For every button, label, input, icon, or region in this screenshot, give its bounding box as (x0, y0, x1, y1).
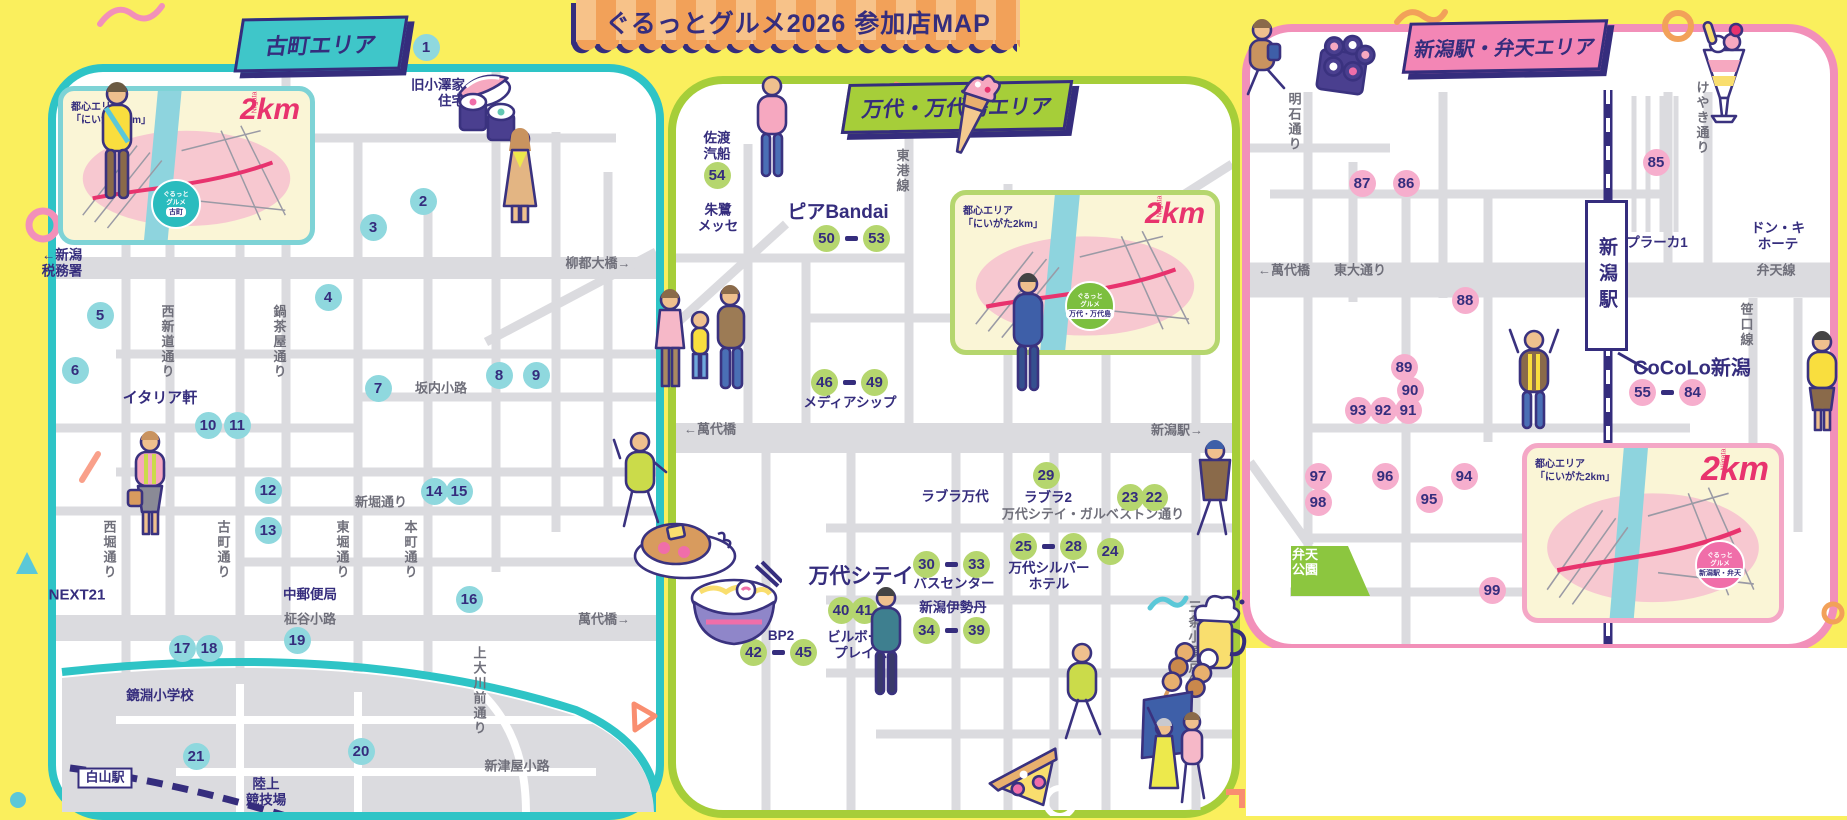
map-marker: 7 (365, 375, 392, 402)
map-marker-range: 3439 (913, 617, 990, 644)
person-tan-dress-woman (498, 128, 542, 224)
map-marker: 98 (1305, 489, 1332, 516)
map-marker: 97 (1305, 463, 1332, 490)
map-marker: 22 (1141, 484, 1168, 511)
person-yellow-man (92, 80, 142, 220)
person-cheering-brown (1506, 322, 1562, 434)
map-marker: 23 (1117, 484, 1144, 511)
map-marker: 10 (195, 412, 222, 439)
area-badge-station-label: 新潟駅・弁天エリア (1412, 30, 1597, 62)
map-marker: 1 (413, 34, 440, 61)
map-marker-range: 5053 (813, 225, 890, 252)
map-marker: 88 (1452, 287, 1479, 314)
noren-flag-group (1126, 688, 1218, 818)
map-marker: 2 (410, 188, 437, 215)
title-banner: ぐるっとグルメ2026 参加店MAP (576, 0, 1020, 44)
map-marker: 6 (62, 357, 89, 384)
map-marker: 3 (360, 214, 387, 241)
map-marker: 12 (255, 477, 282, 504)
map-marker-range: 4649 (811, 369, 888, 396)
map-marker: 20 (348, 738, 375, 765)
gourmet-map-poster: ぐるっとグルメ2026 参加店MAP 古町エリア 万代・万代島エリア 新潟駅・弁… (0, 0, 1847, 816)
map-marker: 8 (486, 362, 513, 389)
map-marker: 54 (704, 162, 731, 189)
map-marker: 18 (196, 635, 223, 662)
map-marker: 96 (1372, 463, 1399, 490)
person-pink-hoodie (750, 74, 794, 184)
map-marker: 5 (87, 302, 114, 329)
map-marker: 91 (1395, 397, 1422, 424)
pizza-icon (986, 746, 1076, 818)
map-marker-range: 5584 (1629, 379, 1706, 406)
map-marker: 24 (1097, 538, 1124, 565)
person-walking-lime (1056, 642, 1108, 746)
family-group (652, 284, 756, 400)
map-marker: 94 (1451, 463, 1478, 490)
map-marker: 86 (1393, 170, 1420, 197)
map-title: ぐるっとグルメ2026 参加店MAP (576, 0, 1020, 44)
blank-legend-area (1246, 648, 1847, 816)
map-marker: 95 (1416, 486, 1443, 513)
person-runner (1244, 18, 1300, 102)
map-marker: 13 (255, 517, 282, 544)
map-marker-range: 3033 (913, 551, 990, 578)
map-marker: 87 (1349, 170, 1376, 197)
map-marker: 14 (421, 478, 448, 505)
map-marker: 29 (1033, 462, 1060, 489)
area-badge-station: 新潟駅・弁天エリア (1402, 19, 1609, 73)
map-marker: 15 (446, 478, 473, 505)
person-pink-cardigan-woman (126, 430, 174, 538)
map-marker: 19 (284, 627, 311, 654)
area-badge-furumachi-label: 古町エリア (263, 27, 378, 61)
map-marker: 9 (523, 362, 550, 389)
person-dark-standing (864, 586, 908, 700)
area-badge-furumachi: 古町エリア (233, 16, 408, 73)
map-marker: 93 (1345, 397, 1372, 424)
crepe-icon (942, 62, 1002, 162)
person-cheering-lime (612, 422, 668, 556)
map-marker: 85 (1643, 149, 1670, 176)
map-marker: 16 (456, 586, 483, 613)
banner-scallop-edge (576, 40, 1020, 55)
map-marker: 21 (183, 743, 210, 770)
map-marker: 17 (169, 635, 196, 662)
map-marker: 11 (224, 412, 251, 439)
person-brown-coat-walker (1190, 440, 1240, 540)
map-marker-range: 2528 (1010, 533, 1087, 560)
person-blue-coat (1006, 272, 1050, 396)
parfait-icon (1692, 20, 1756, 138)
map-marker: 4 (315, 284, 342, 311)
person-right-edge (1800, 330, 1846, 434)
map-marker: 99 (1479, 577, 1506, 604)
ramen-icon (686, 556, 782, 656)
maki-box-icon (1312, 26, 1376, 100)
map-marker: 92 (1370, 397, 1397, 424)
